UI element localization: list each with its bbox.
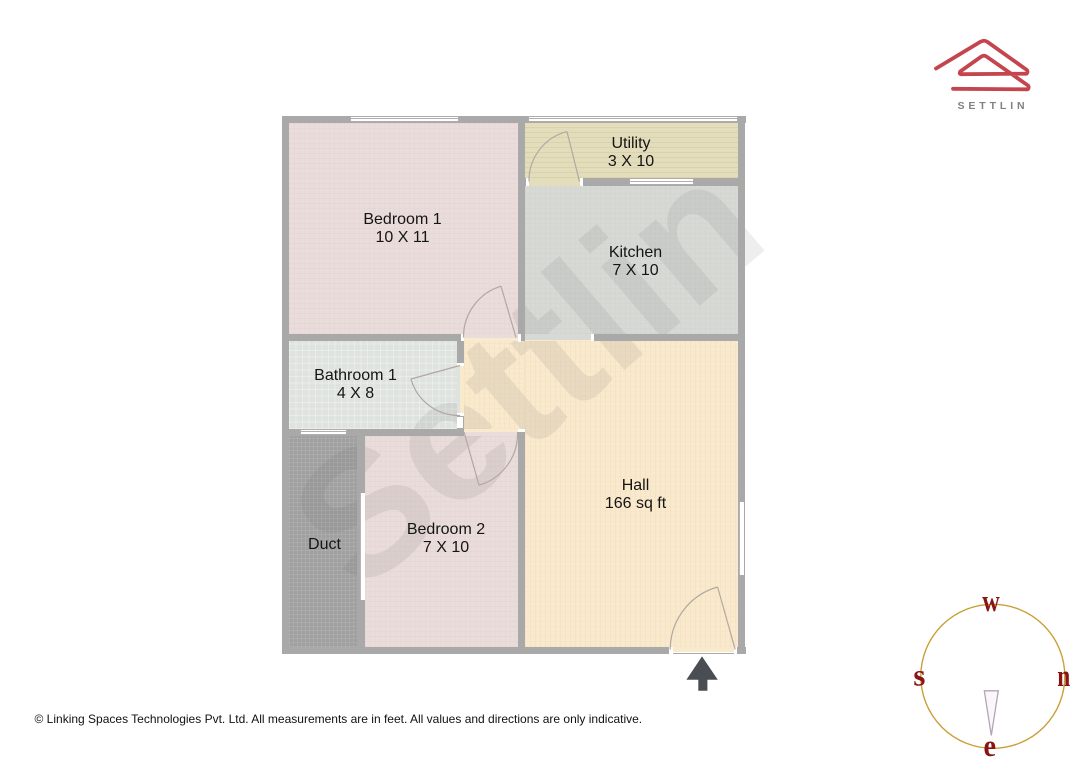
svg-text:n: n [1057,658,1070,693]
svg-text:e: e [983,728,996,763]
svg-text:SETTLIN: SETTLIN [957,100,1028,112]
svg-text:w: w [982,583,1000,618]
svg-text:s: s [913,658,925,693]
